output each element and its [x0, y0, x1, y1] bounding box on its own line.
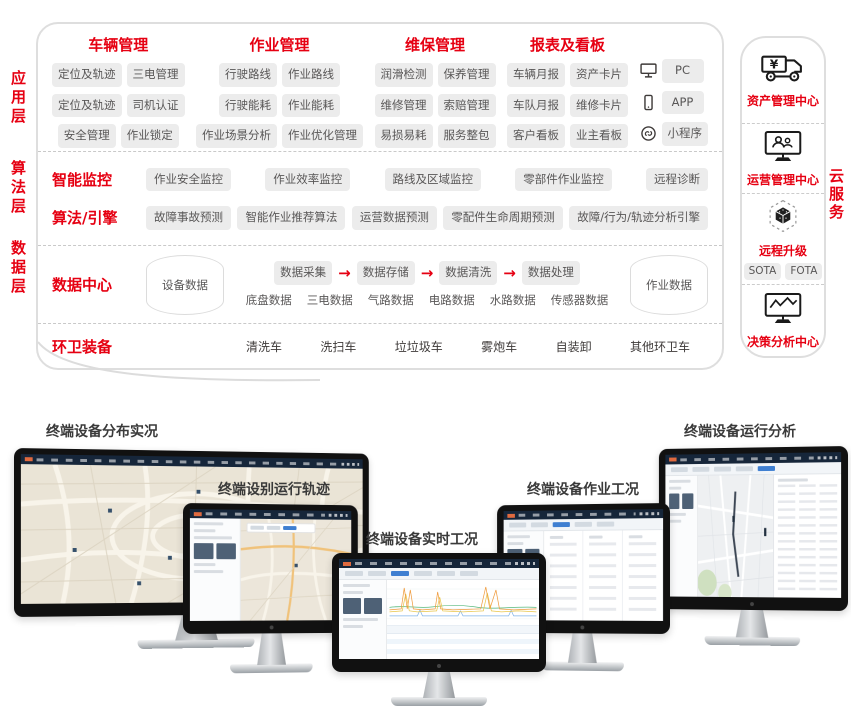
device-data-store: 设备数据 [146, 255, 224, 315]
pill-row: 安全管理 作业锁定 [58, 124, 179, 148]
equipment-item: 雾炮车 [481, 338, 517, 355]
placeholder-line [778, 478, 807, 481]
equipment-item: 自装卸 [556, 338, 592, 355]
form-rows [629, 542, 656, 617]
pill-row: 作业场景分析 作业优化管理 [196, 124, 363, 148]
fota-pill: FOTA [785, 263, 822, 280]
feature-pill: 作业场景分析 [196, 124, 277, 148]
tab-chip-active [553, 522, 570, 527]
form-rows [550, 543, 577, 617]
placeholder-line [669, 520, 681, 523]
realtime-table [387, 626, 539, 659]
monitor-stand-neck [736, 610, 768, 638]
placeholder-line [343, 618, 378, 621]
monitor-stand-neck [568, 633, 597, 663]
tab-chip [671, 467, 688, 472]
data-flow-steps: 数据采集 → 数据存储 → 数据清洗 → 数据处理 [274, 261, 580, 285]
feature-pill: 三电管理 [127, 63, 185, 87]
placeholder-line [343, 625, 363, 628]
screen-user-icons [640, 512, 660, 515]
feature-pill: 作业路线 [282, 63, 340, 87]
tab-chip [692, 467, 709, 472]
equipment-item: 洗扫车 [320, 338, 356, 355]
analysis-detail-panel [774, 474, 841, 598]
asset-mgmt-center: ¥ 资产管理中心 [742, 38, 824, 124]
flow-arrow-icon: → [338, 266, 351, 281]
analysis-map [698, 475, 773, 598]
flow-pill: 数据采集 [274, 261, 332, 285]
monitor-label-realtime: 终端设备实时工况 [366, 529, 478, 549]
monitor-power-led [437, 664, 441, 668]
feature-pill: 行驶路线 [219, 63, 277, 87]
sub-data-item: 三电数据 [307, 292, 353, 308]
algo-pill: 远程诊断 [646, 168, 708, 192]
detail-cell [820, 484, 837, 594]
mobile-app-icon [640, 94, 657, 111]
monitor-bezel [332, 553, 546, 672]
flow-pill: 数据清洗 [439, 261, 497, 285]
group-maintenance-mgmt: 维保管理 润滑检测 保养管理 维修管理 索赔管理 易损易耗 服务整包 [375, 32, 496, 151]
monitor-label-distribution: 终端设备分布实况 [46, 421, 158, 441]
smart-monitoring-row: 智能监控 作业安全监控 作业效率监控 路线及区域监控 零部件作业监控 远程诊断 [52, 168, 708, 192]
device-pill: PC [662, 59, 704, 83]
equipment-item: 其他环卫车 [630, 338, 690, 355]
screen-sidebar [339, 580, 387, 659]
monitor-power-led [270, 625, 274, 629]
toolbar-chip-active [283, 526, 296, 530]
feature-pill: 作业优化管理 [282, 124, 363, 148]
tab-chip [714, 467, 731, 472]
equipment-section: 环卫装备 清洗车 洗扫车 垃垃圾车 雾炮车 自装卸 其他环卫车 [38, 324, 722, 368]
page: 应用层 算法层 数据层 车辆管理 定位及轨迹 三电管理 定位及轨迹 司机认证 安… [0, 0, 851, 715]
algo-pill: 智能作业推荐算法 [237, 206, 345, 230]
screen-body [665, 474, 841, 598]
pill-row: 故障事故预测 智能作业推荐算法 运营数据预测 零配件生命周期预测 故障/行为/轨… [146, 206, 708, 230]
algo-engine-row: 算法/引擎 故障事故预测 智能作业推荐算法 运营数据预测 零配件生命周期预测 故… [52, 206, 708, 230]
asset-truck-icon: ¥ [760, 52, 806, 88]
screen-menu-items [355, 562, 511, 565]
placeholder-line [343, 591, 363, 594]
screen-form-area [544, 530, 663, 621]
algo-pill: 运营数据预测 [352, 206, 437, 230]
tab-chip-active [758, 466, 775, 471]
screen-chart-area [387, 580, 539, 659]
group-vehicle-mgmt: 车辆管理 定位及轨迹 三电管理 定位及轨迹 司机认证 安全管理 作业锁定 [52, 32, 185, 151]
device-row-pc: PC [640, 59, 709, 83]
tab-chip [437, 571, 455, 576]
placeholder-line [669, 480, 691, 483]
pill-row: 定位及轨迹 司机认证 [52, 94, 185, 118]
pill-row: 车辆月报 资产卡片 [507, 63, 628, 87]
monitor-screen [665, 452, 841, 598]
screen-body [339, 580, 539, 659]
row-label: 数据中心 [52, 274, 146, 295]
tab-chip [736, 466, 753, 471]
feature-pill: 安全管理 [58, 124, 116, 148]
device-pill: 小程序 [662, 122, 709, 146]
architecture-box: 车辆管理 定位及轨迹 三电管理 定位及轨迹 司机认证 安全管理 作业锁定 作业管… [36, 22, 724, 370]
screen-user-icons [329, 514, 348, 517]
form-column [623, 530, 663, 621]
table-header [387, 626, 539, 634]
feature-pill: 资产卡片 [570, 63, 628, 87]
flow-pill: 数据存储 [357, 261, 415, 285]
screen-menu-items [680, 456, 813, 461]
form-column [583, 530, 623, 620]
screen-sidebar [665, 476, 698, 597]
tab-chip [368, 571, 386, 576]
algo-pill: 路线及区域监控 [385, 168, 482, 192]
pill-row: 维修管理 索赔管理 [375, 94, 496, 118]
tab-chip [345, 571, 363, 576]
layer-label-application: 应用层 [8, 70, 29, 127]
feature-pill: 润滑检测 [375, 63, 433, 87]
monitor-label-operation: 终端设备作业工况 [527, 479, 639, 499]
screen-menu-items [519, 512, 636, 516]
sota-pill: SOTA [744, 263, 782, 280]
algo-pill: 零配件生命周期预测 [443, 206, 563, 230]
cloud-section-label: 资产管理中心 [747, 92, 819, 109]
pill-row: 定位及轨迹 三电管理 [52, 63, 185, 87]
monitor-power-led [750, 602, 754, 606]
operation-data-store: 作业数据 [630, 255, 708, 315]
device-row-miniprogram: 小程序 [640, 122, 709, 146]
ota-pills: SOTA FOTA [744, 263, 823, 280]
access-devices: PC APP 小程序 [640, 32, 709, 151]
tab-chip [597, 522, 614, 527]
feature-pill: 服务整包 [438, 124, 496, 148]
placeholder-line [194, 570, 224, 573]
algo-pill: 零部件作业监控 [515, 168, 612, 192]
equipment-items: 清洗车 洗扫车 垃垃圾车 雾炮车 自装卸 其他环卫车 [246, 338, 690, 355]
toolbar-chip [267, 526, 280, 530]
monitor-bezel [659, 446, 848, 611]
chart-lines [387, 580, 539, 625]
table-rows [387, 634, 539, 659]
monitor-stand-base [541, 661, 624, 671]
pill-row: 易损易耗 服务整包 [375, 124, 496, 148]
group-title: 车辆管理 [88, 34, 148, 55]
monitor-device-realtime [332, 553, 546, 706]
screen-logo [669, 458, 676, 462]
remote-upgrade: 远程升级 SOTA FOTA [742, 194, 824, 285]
application-section: 车辆管理 定位及轨迹 三电管理 定位及轨迹 司机认证 安全管理 作业锁定 作业管… [38, 24, 722, 152]
screen-menu-items [206, 512, 325, 516]
feature-pill: 车队月报 [507, 94, 565, 118]
group-title: 作业管理 [249, 34, 309, 55]
device-pill: APP [662, 91, 704, 115]
sub-data-item: 传感器数据 [551, 292, 609, 308]
form-columns [544, 530, 663, 621]
placeholder-line [507, 542, 523, 545]
tab-chip [575, 522, 592, 527]
mini-table-blocks [669, 493, 693, 509]
flow-pill: 数据处理 [522, 261, 580, 285]
screen-sidebar [190, 518, 241, 621]
cloud-service-side-label: 云服务 [826, 168, 847, 222]
placeholder-line [343, 584, 370, 587]
group-title: 维保管理 [405, 34, 465, 55]
screen-tab-strip [339, 568, 539, 580]
tab-chip [509, 523, 526, 528]
layer-label-data: 数据层 [8, 240, 29, 297]
remote-upgrade-cube-icon [765, 198, 801, 238]
equipment-item: 垃垃圾车 [395, 338, 443, 355]
feature-pill: 行驶能耗 [219, 94, 277, 118]
pill-row: 行驶能耗 作业能耗 [219, 94, 340, 118]
feature-pill: 作业能耗 [282, 94, 340, 118]
feature-pill: 作业锁定 [121, 124, 179, 148]
screen-user-icons [818, 456, 838, 459]
svg-text:¥: ¥ [770, 57, 779, 71]
monitor-screen [339, 559, 539, 659]
placeholder-line [550, 536, 563, 539]
feature-pill: 司机认证 [127, 94, 185, 118]
screen-logo [507, 513, 515, 517]
tab-chip [531, 522, 548, 527]
placeholder-line [629, 535, 643, 538]
placeholder-line [194, 563, 215, 566]
placeholder-line [669, 487, 681, 490]
analysis-monitor-icon [763, 292, 803, 329]
map-toolbar [246, 523, 315, 534]
algorithm-section: 智能监控 作业安全监控 作业效率监控 路线及区域监控 零部件作业监控 远程诊断 … [38, 152, 722, 246]
screen-body [190, 518, 351, 621]
feature-pill: 客户看板 [507, 124, 565, 148]
feature-pill: 业主看板 [570, 124, 628, 148]
cloud-section-label: 决策分析中心 [747, 333, 819, 350]
screen-logo [25, 457, 33, 461]
sub-data-item: 水路数据 [490, 292, 536, 308]
algo-pill: 作业安全监控 [146, 168, 231, 192]
row-label: 智能监控 [52, 169, 146, 190]
group-reports-dashboards: 报表及看板 车辆月报 资产卡片 车队月报 维修卡片 客户看板 业主看板 [507, 32, 628, 151]
miniprogram-icon [640, 125, 657, 142]
sub-data-types: 底盘数据 三电数据 气路数据 电路数据 水路数据 传感器数据 [246, 292, 609, 308]
feature-pill: 定位及轨迹 [52, 94, 122, 118]
equipment-item: 清洗车 [246, 338, 282, 355]
sub-data-item: 电路数据 [429, 292, 475, 308]
row-label: 环卫装备 [52, 336, 146, 357]
placeholder-line [589, 536, 602, 539]
row-label: 算法/引擎 [52, 207, 146, 228]
analysis-map-panel [698, 475, 774, 598]
decision-analysis-center: 决策分析中心 [742, 285, 824, 356]
pc-icon [640, 63, 657, 78]
monitor-stand-neck [423, 672, 455, 698]
feature-pill: 易损易耗 [375, 124, 433, 148]
placeholder-line [507, 535, 529, 538]
layer-label-algorithm: 算法层 [8, 160, 29, 217]
sub-data-item: 气路数据 [368, 292, 414, 308]
algo-pill: 故障/行为/轨迹分析引擎 [569, 206, 708, 230]
screen-navbar [339, 559, 539, 568]
tab-chip [460, 571, 478, 576]
operations-monitor-icon [763, 130, 803, 167]
pill-row: 润滑检测 保养管理 [375, 63, 496, 87]
form-rows [589, 542, 616, 616]
algo-pill: 故障事故预测 [146, 206, 231, 230]
operations-mgmt-center: 运营管理中心 [742, 124, 824, 194]
flow-arrow-icon: → [421, 266, 434, 281]
pill-row: 行驶路线 作业路线 [219, 63, 340, 87]
form-column [544, 531, 583, 621]
monitor-power-led [580, 625, 584, 629]
sub-data-item: 底盘数据 [246, 292, 292, 308]
group-operation-mgmt: 作业管理 行驶路线 作业路线 行驶能耗 作业能耗 作业场景分析 作业优化管理 [196, 32, 363, 151]
data-center-section: 数据中心 设备数据 数据采集 → 数据存储 → 数据清洗 → 数据处理 底盘数据… [38, 246, 722, 324]
monitor-stand-neck [257, 633, 286, 665]
screen-logo [343, 562, 351, 566]
monitor-label-trajectory: 终端设别运行轨迹 [218, 479, 330, 499]
feature-pill: 车辆月报 [507, 63, 565, 87]
detail-grid [778, 484, 837, 594]
detail-cell [778, 485, 795, 594]
feature-pill: 维修卡片 [570, 94, 628, 118]
feature-pill: 保养管理 [438, 63, 496, 87]
placeholder-line [194, 536, 232, 539]
toolbar-chip [250, 526, 264, 530]
device-row-app: APP [640, 91, 709, 115]
pill-row: 车队月报 维修卡片 [507, 94, 628, 118]
screen-logo [194, 512, 202, 516]
monitor-stand-base [391, 697, 487, 706]
monitor-stand-base [230, 663, 313, 673]
monitor-device-analysis [659, 446, 848, 647]
detail-cell [799, 484, 816, 593]
pill-row: 客户看板 业主看板 [507, 124, 628, 148]
screen-user-icons [515, 562, 535, 565]
placeholder-line [194, 522, 224, 525]
tab-chip-active [391, 571, 409, 576]
cloud-services-panel: ¥ 资产管理中心 运营管理中心 远程升级 SOTA FOTA 决策分析中心 [740, 36, 826, 358]
data-flow: 数据采集 → 数据存储 → 数据清洗 → 数据处理 底盘数据 三电数据 气路数据… [238, 261, 616, 308]
monitor-screen [190, 509, 351, 621]
cloud-section-label: 运营管理中心 [747, 171, 819, 188]
tab-chip [414, 571, 432, 576]
group-title: 报表及看板 [530, 34, 605, 55]
pill-row: 作业安全监控 作业效率监控 路线及区域监控 零部件作业监控 远程诊断 [146, 168, 708, 192]
monitor-label-analysis: 终端设备运行分析 [684, 421, 796, 441]
flow-arrow-icon: → [503, 266, 516, 281]
screen-user-icons [342, 462, 360, 465]
placeholder-line [669, 513, 686, 516]
mini-table-blocks [194, 543, 236, 559]
feature-pill: 定位及轨迹 [52, 63, 122, 87]
mini-table-blocks [343, 598, 382, 614]
algo-pill: 作业效率监控 [265, 168, 350, 192]
feature-pill: 索赔管理 [438, 94, 496, 118]
realtime-chart [387, 580, 539, 626]
cloud-section-label: 远程升级 [759, 242, 807, 259]
placeholder-line [194, 529, 215, 532]
feature-pill: 维修管理 [375, 94, 433, 118]
